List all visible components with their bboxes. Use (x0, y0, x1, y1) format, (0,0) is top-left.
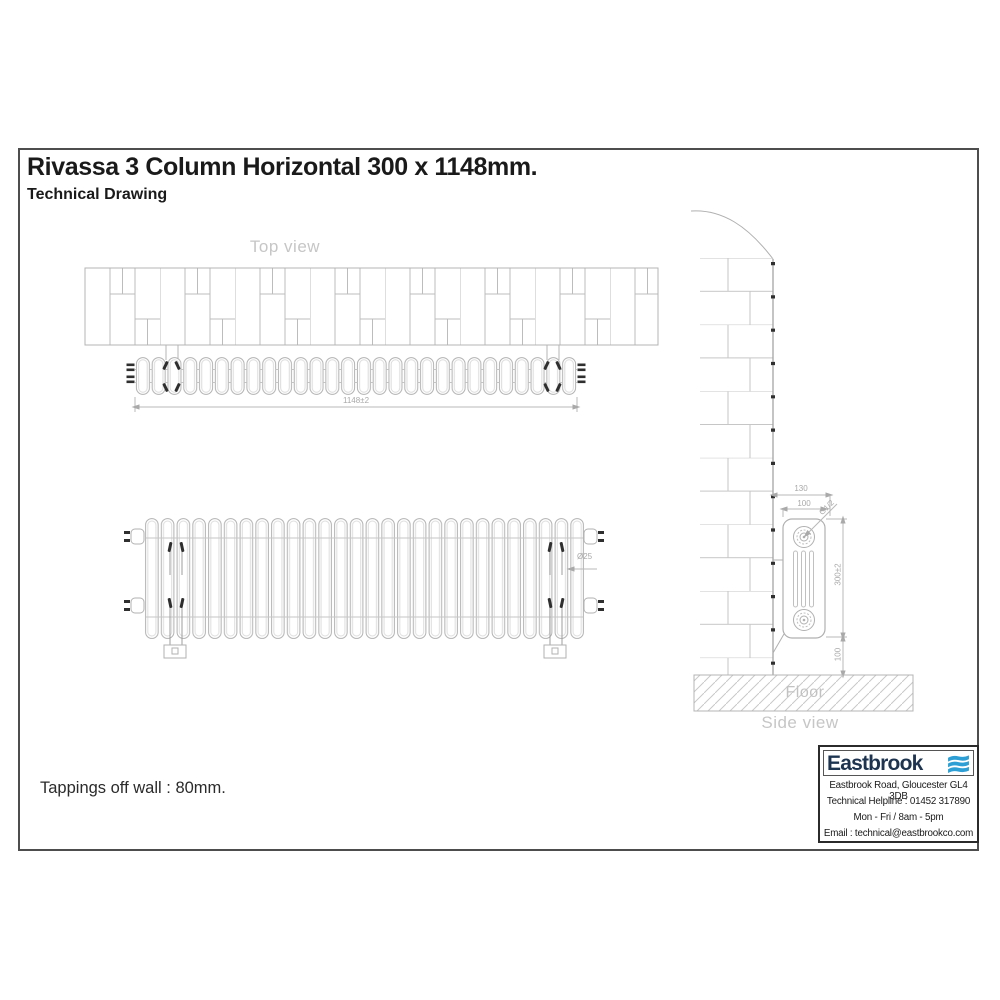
side-view-wall (700, 258, 773, 675)
side-view-drawing (691, 211, 913, 711)
front-view-drawing (124, 518, 604, 658)
top-view-drawing (85, 268, 658, 412)
drawing-sheet: Rivassa 3 Column Horizontal 300 x 1148mm… (0, 0, 1000, 1000)
depth-dimension-text: 100 (784, 499, 824, 508)
floor-clearance-dimension-text: 100 (834, 635, 843, 675)
floor-label: Floor (760, 684, 850, 702)
manufacturer-info-box: Eastbrook Eastbrook Road, Gloucester GL4… (818, 745, 979, 843)
height-dimension-text: 300±2 (834, 553, 843, 597)
front-view-feet (164, 645, 566, 658)
top-view-radiator-sections (135, 357, 577, 395)
manufacturer-hours: Mon - Fri / 8am - 5pm (820, 812, 977, 823)
length-dimension-text: 1148±2 (306, 396, 406, 405)
top-view-label: Top view (230, 237, 340, 257)
manufacturer-email: Email : technical@eastbrookco.com (820, 828, 977, 839)
brand-name: Eastbrook (827, 753, 923, 774)
overall-depth-dimension-text: 130 (781, 484, 821, 493)
side-view-label: Side view (745, 713, 855, 733)
side-view-wall-bracket (773, 560, 784, 653)
side-view-bottom-tapping (794, 610, 815, 631)
top-view-wall (85, 268, 658, 345)
technical-drawing-canvas (0, 0, 1000, 1000)
side-view-wall-break-curve (691, 211, 773, 259)
front-view-columns (144, 518, 585, 639)
manufacturer-helpline: Technical Helpline : 01452 317890 (820, 796, 977, 807)
tappings-note: Tappings off wall : 80mm. (40, 779, 226, 798)
waves-icon (947, 754, 970, 773)
brand-logo: Eastbrook (823, 750, 974, 776)
tube-diameter-dimension-text: Ø25 (577, 552, 592, 561)
